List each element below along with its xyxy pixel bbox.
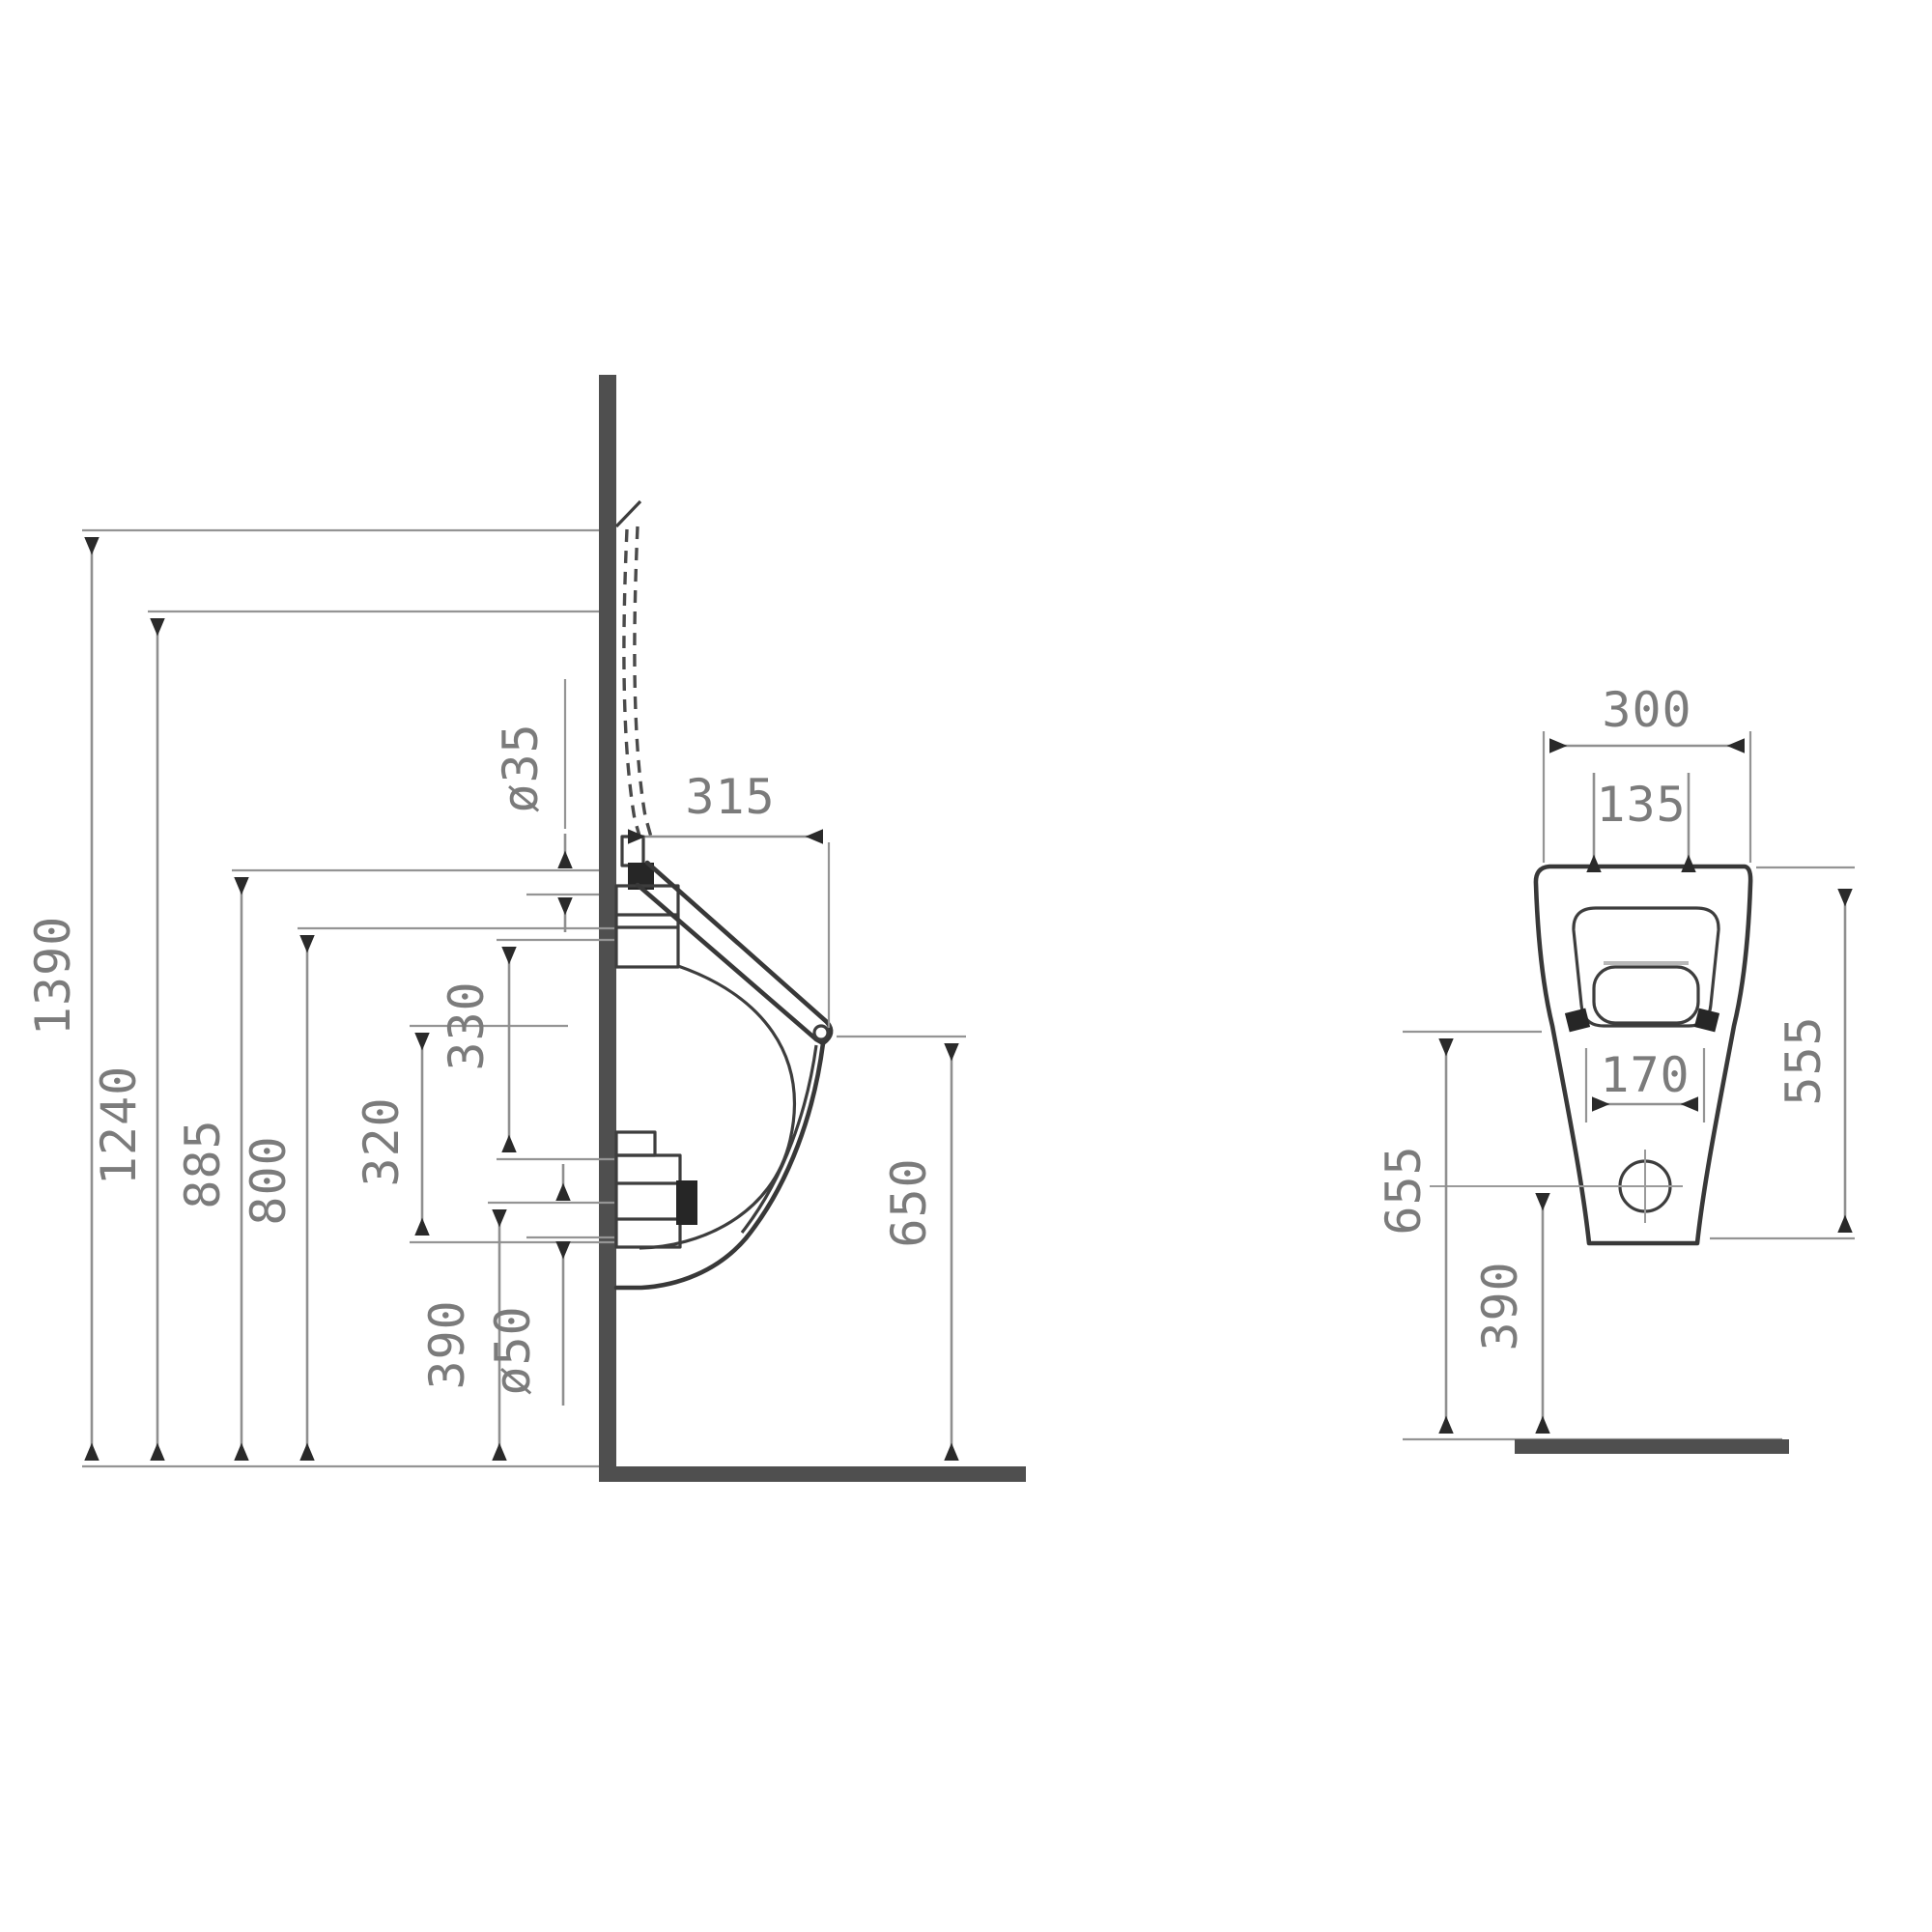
dim-label-655: 655 [1376, 1145, 1432, 1235]
dim-label-o35: ø35 [493, 723, 549, 812]
dim-label-885: 885 [175, 1119, 231, 1208]
dim-height-655: 655 [1376, 1032, 1542, 1434]
technical-drawing-canvas: 1390 1240 885 800 320 [0, 0, 1932, 1932]
dim-label-o50: ø50 [485, 1305, 541, 1395]
floor-section [599, 1466, 1026, 1482]
front-view: 300 135 170 555 655 [1376, 682, 1855, 1454]
flush-pipe-dashed [616, 501, 652, 846]
dim-label-650: 650 [881, 1157, 937, 1247]
dim-label-300: 300 [1602, 682, 1691, 738]
dim-outlet-span-170: 170 [1586, 1047, 1704, 1122]
dim-height-555: 555 [1710, 867, 1855, 1238]
dim-offset-330: 330 [439, 940, 614, 1159]
dim-label-330: 330 [439, 980, 495, 1070]
mounting-lug-left [1565, 1009, 1590, 1033]
dim-label-390-side: 390 [419, 1299, 475, 1389]
dim-label-555: 555 [1776, 1015, 1832, 1105]
dim-label-1390: 1390 [25, 916, 81, 1036]
dim-label-315: 315 [685, 769, 775, 825]
dim-outlet-diameter-50: ø50 [485, 1164, 614, 1406]
drain-crosshair-icon [1430, 1150, 1683, 1223]
dim-label-1240: 1240 [91, 1065, 147, 1185]
outlet-spud [616, 1132, 697, 1247]
dim-inlet-diameter-35: ø35 [493, 679, 599, 932]
dim-inlet-span-135: 135 [1594, 773, 1689, 872]
mounting-lug-right [1694, 1009, 1719, 1033]
dim-label-390-front: 390 [1472, 1261, 1528, 1350]
dim-height-390-front: 390 [1472, 1193, 1543, 1434]
dim-label-135: 135 [1596, 777, 1686, 833]
inlet-spud [616, 837, 678, 967]
dim-label-320: 320 [354, 1096, 410, 1186]
dim-width-300: 300 [1544, 682, 1750, 863]
inner-basin [1594, 967, 1698, 1023]
dim-height-650: 650 [837, 1037, 966, 1461]
dim-label-170: 170 [1600, 1047, 1690, 1103]
front-floor-section [1515, 1439, 1789, 1454]
drawing-page: 1390 1240 885 800 320 [0, 0, 1932, 1932]
side-view: 1390 1240 885 800 320 [25, 375, 1026, 1482]
dim-label-800: 800 [241, 1135, 297, 1225]
